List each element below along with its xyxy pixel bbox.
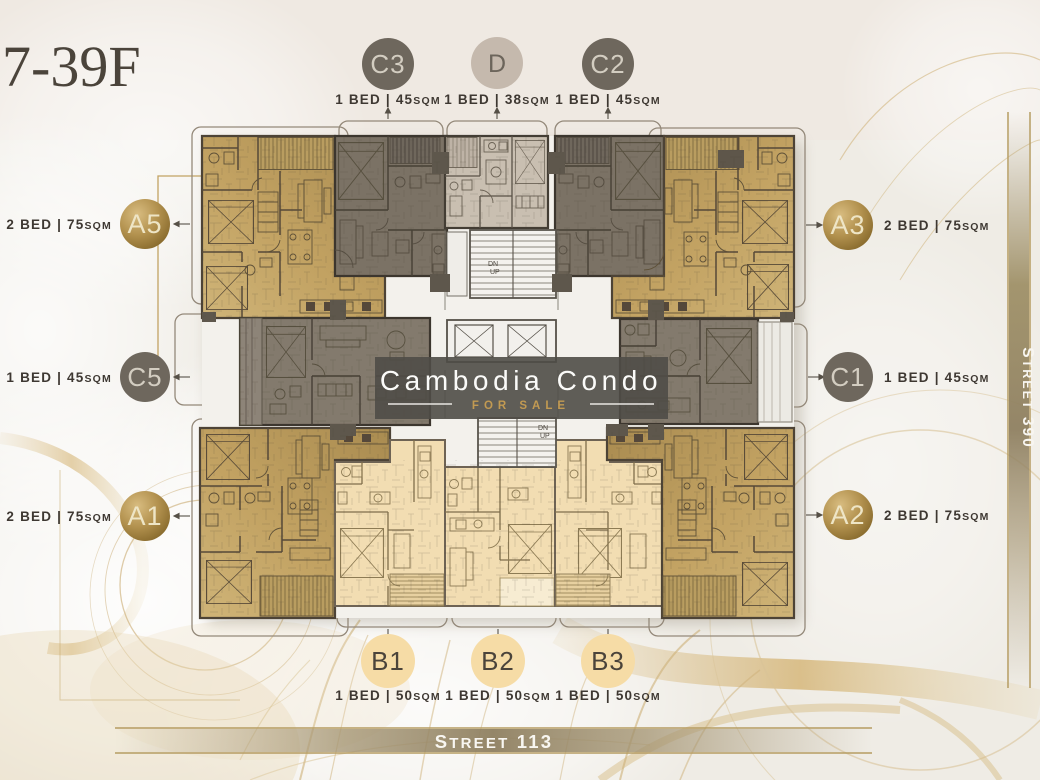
svg-text:B3: B3 <box>591 646 625 676</box>
svg-text:1 BED | 38SQM: 1 BED | 38SQM <box>444 92 550 107</box>
svg-text:DN: DN <box>538 425 548 432</box>
svg-text:Cambodia Condo: Cambodia Condo <box>380 365 662 396</box>
svg-text:2 BED | 75SQM: 2 BED | 75SQM <box>6 509 112 524</box>
svg-text:FOR SALE: FOR SALE <box>472 400 570 412</box>
svg-text:7-39F: 7-39F <box>2 34 141 99</box>
svg-text:A5: A5 <box>127 209 162 239</box>
svg-text:B1: B1 <box>371 646 405 676</box>
svg-text:STREET 390: STREET 390 <box>1019 347 1036 449</box>
svg-text:C1: C1 <box>830 362 865 392</box>
svg-text:C3: C3 <box>370 49 405 79</box>
svg-text:A3: A3 <box>830 210 865 240</box>
svg-text:UP: UP <box>540 433 550 440</box>
svg-text:1 BED | 50SQM: 1 BED | 50SQM <box>555 688 661 703</box>
svg-text:D: D <box>488 50 506 78</box>
svg-text:1 BED | 50SQM: 1 BED | 50SQM <box>445 688 551 703</box>
svg-text:1 BED | 45SQM: 1 BED | 45SQM <box>884 370 990 385</box>
svg-text:1 BED | 45SQM: 1 BED | 45SQM <box>6 370 112 385</box>
svg-text:UP: UP <box>490 269 500 276</box>
svg-text:2 BED | 75SQM: 2 BED | 75SQM <box>884 508 990 523</box>
svg-text:A2: A2 <box>830 500 865 530</box>
svg-text:DN: DN <box>488 261 498 268</box>
svg-text:1 BED | 45SQM: 1 BED | 45SQM <box>335 92 441 107</box>
svg-text:1 BED | 45SQM: 1 BED | 45SQM <box>555 92 661 107</box>
svg-text:B2: B2 <box>481 646 515 676</box>
svg-text:2 BED | 75SQM: 2 BED | 75SQM <box>884 218 990 233</box>
svg-text:STREET 113: STREET 113 <box>435 731 554 752</box>
svg-text:C5: C5 <box>127 362 162 392</box>
svg-text:2 BED | 75SQM: 2 BED | 75SQM <box>6 217 112 232</box>
svg-text:C2: C2 <box>590 49 625 79</box>
svg-text:A1: A1 <box>127 501 162 531</box>
svg-text:1 BED | 50SQM: 1 BED | 50SQM <box>335 688 441 703</box>
